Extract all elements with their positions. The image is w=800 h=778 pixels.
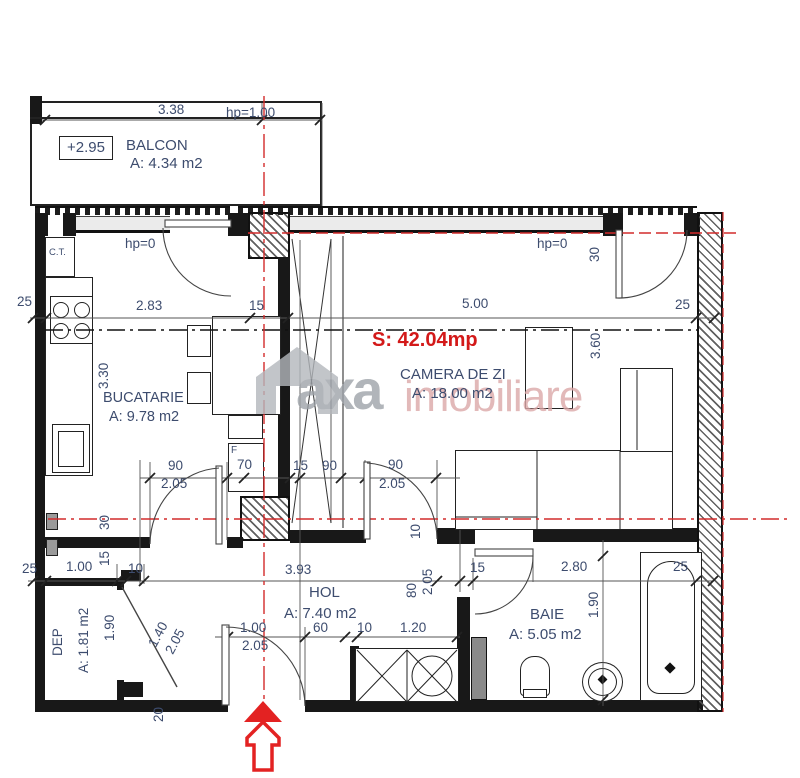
floor-plan: axa imobiliare +2.95 BALCON A: 4.34 m2 B… <box>0 0 800 778</box>
room-area-hol: A: 7.40 m2 <box>284 606 357 622</box>
room-area-baie: A: 5.05 m2 <box>509 627 582 643</box>
room-name-baie: BAIE <box>530 607 564 623</box>
room-area-bucatarie: A: 9.78 m2 <box>109 410 179 425</box>
room-name-dep: DEP <box>51 628 65 656</box>
room-area-balcon: A: 4.34 m2 <box>130 156 203 172</box>
room-name-hol: HOL <box>309 585 340 601</box>
wardrobe-lines <box>357 650 457 702</box>
room-name-balcon: BALCON <box>126 138 188 154</box>
total-area-label: S: 42.04mp <box>372 330 478 351</box>
entrance-arrow <box>244 701 282 770</box>
room-name-ct: C.T. <box>49 248 66 258</box>
plan-linework <box>0 0 800 778</box>
dep-door <box>122 587 177 687</box>
room-area-dep: A: 1.81 m2 <box>77 608 91 673</box>
doors <box>122 220 687 706</box>
room-name-camera-de-zi: CAMERA DE ZI <box>400 367 506 383</box>
balcony-level: +2.95 <box>67 139 105 156</box>
room-name-bucatarie: BUCATARIE <box>103 391 184 406</box>
balcony-level-badge: +2.95 <box>59 136 113 160</box>
room-area-camera-de-zi: A: 18.00 m2 <box>412 386 493 402</box>
